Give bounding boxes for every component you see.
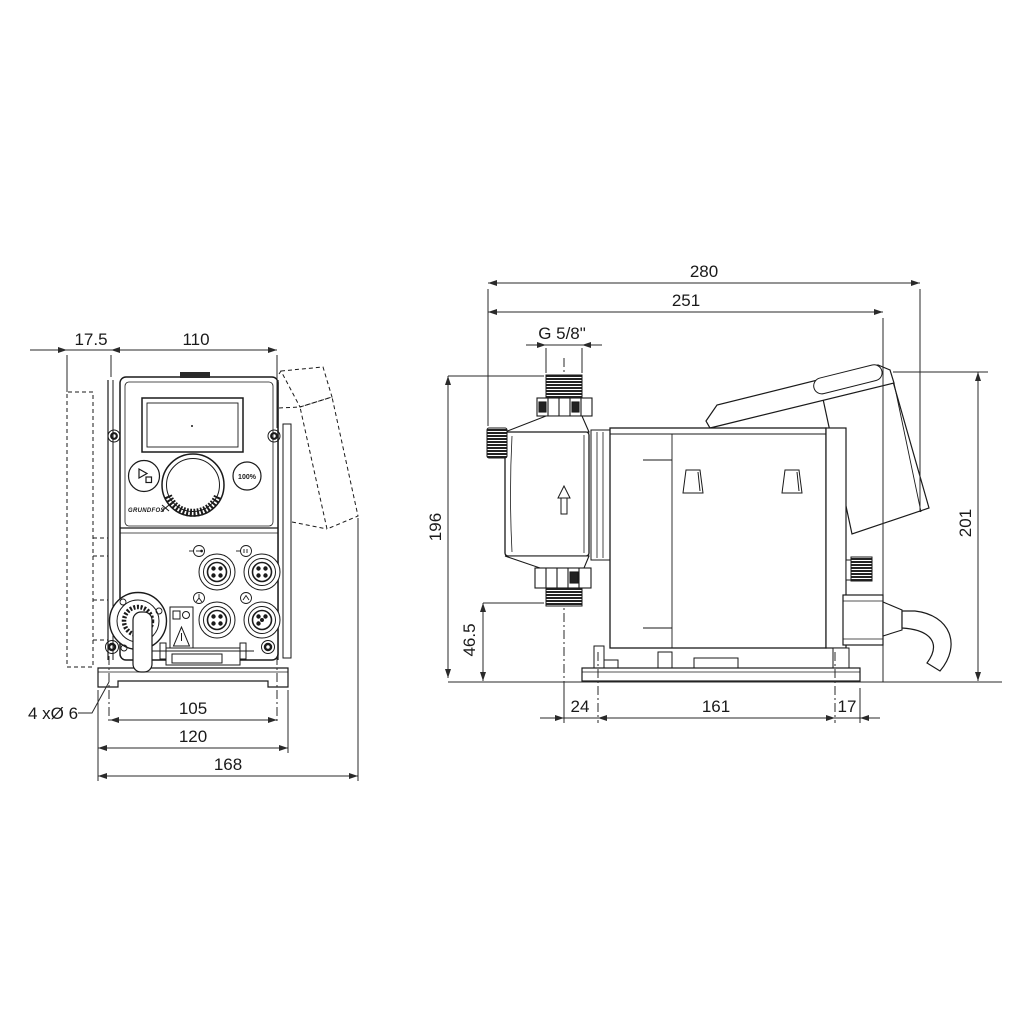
dim-hole-spacing: 105: [179, 699, 207, 718]
front-view: 100% GRUNDFOS: [28, 330, 358, 781]
connector-socket: [244, 554, 280, 590]
cable-gland-side: [843, 557, 951, 671]
dim-base-holes: 161: [702, 697, 730, 716]
back-plate-dashed: [67, 392, 108, 667]
dim-cube-height: 201: [956, 509, 975, 537]
drawing-canvas: 100% GRUNDFOS: [0, 0, 1024, 1024]
dim-offset: 17.5: [74, 330, 107, 349]
hole-callout: 4 xØ 6: [28, 682, 109, 723]
connector-socket: [199, 602, 235, 638]
dim-total-depth: 280: [690, 262, 718, 281]
power-cable: [902, 611, 951, 671]
warning-label: [170, 607, 193, 651]
inlet-fitting: [505, 375, 592, 432]
pump-dimensional-drawing: 100% GRUNDFOS: [0, 0, 1024, 1024]
dim-panel-width: 110: [182, 330, 209, 349]
dosing-head: [487, 428, 610, 568]
side-view: 280 251 G 5/8" 196 46.5: [426, 262, 1002, 723]
motor-body: [594, 428, 849, 668]
outlet-fitting: [535, 568, 591, 606]
start-stop-button[interactable]: [129, 461, 160, 492]
dim-height: 196: [426, 513, 445, 541]
dim-base-rear: 17: [838, 697, 857, 716]
cable: [133, 612, 152, 672]
click-wheel[interactable]: [162, 454, 224, 516]
svg-text:GRUNDFOS: GRUNDFOS: [128, 508, 165, 514]
body-feet: [594, 646, 849, 668]
connector-socket: [199, 554, 235, 590]
svg-text:4 xØ 6: 4 xØ 6: [28, 704, 78, 723]
dim-outlet-height: 46.5: [460, 623, 479, 656]
base-plate-side: [582, 668, 860, 681]
vent-valve-knob[interactable]: [487, 428, 507, 458]
dim-total-width: 168: [214, 755, 242, 774]
top-tab: [180, 372, 210, 378]
dim-base-front: 24: [571, 697, 590, 716]
connector-socket: [244, 602, 280, 638]
percent-button[interactable]: 100%: [233, 462, 261, 490]
svg-text:G 5/8": G 5/8": [538, 324, 586, 343]
percent-button-label: 100%: [238, 474, 257, 481]
dim-body-depth: 251: [672, 291, 700, 310]
head-flange: [591, 430, 610, 560]
dim-plate-width: 120: [179, 727, 207, 746]
